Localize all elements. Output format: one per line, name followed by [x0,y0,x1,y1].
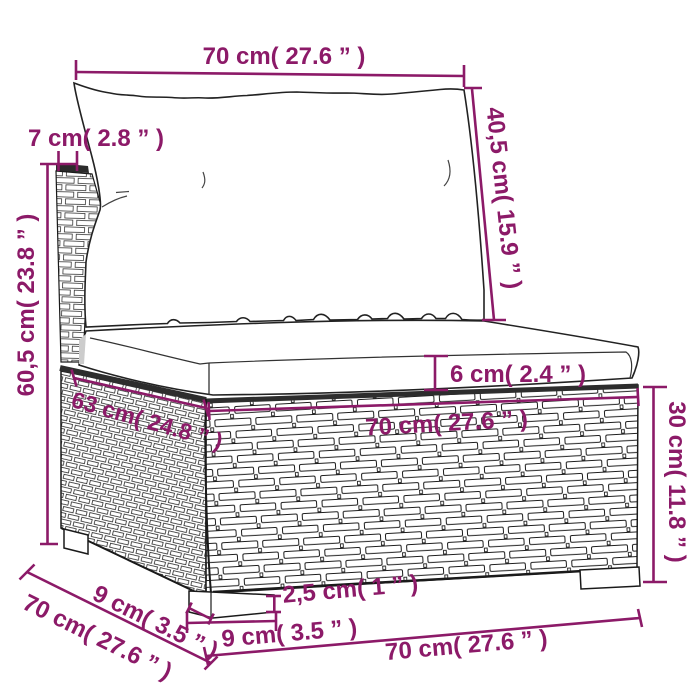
svg-text:60,5 cm( 23.8 ” ): 60,5 cm( 23.8 ” ) [13,214,40,397]
svg-text:30 cm( 11.8 ” ): 30 cm( 11.8 ” ) [663,401,690,562]
svg-text:7 cm( 2.8 ” ): 7 cm( 2.8 ” ) [28,125,164,152]
svg-text:70 cm( 27.6 ” ): 70 cm( 27.6 ” ) [384,625,548,666]
svg-text:9 cm( 3.5 ” ): 9 cm( 3.5 ” ) [220,614,358,653]
svg-text:70 cm( 27.6 ” ): 70 cm( 27.6 ” ) [203,43,366,70]
svg-text:6 cm( 2.4 ” ): 6 cm( 2.4 ” ) [450,361,586,388]
